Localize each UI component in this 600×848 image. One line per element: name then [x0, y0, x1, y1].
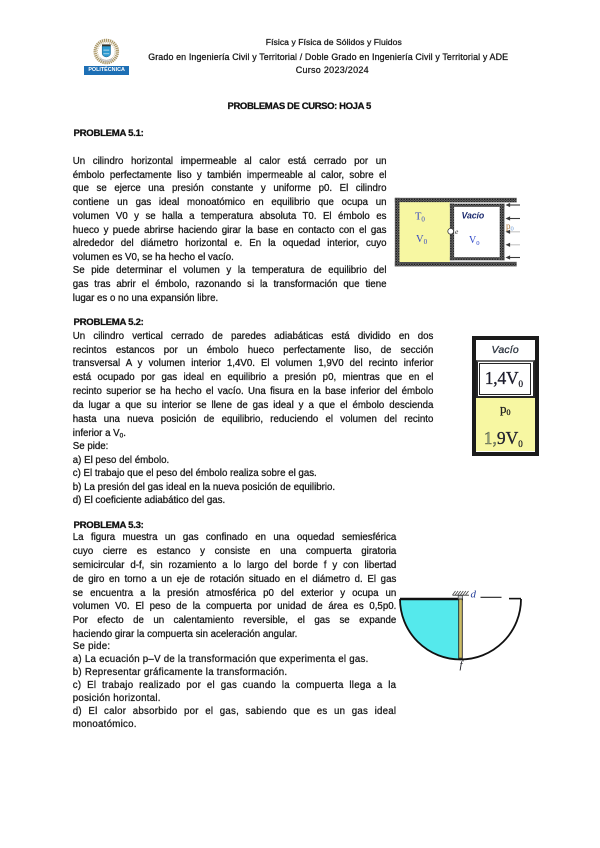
svg-text:V0: V0 [469, 235, 480, 247]
svg-text:e: e [455, 227, 459, 236]
svg-text:p0: p0 [506, 221, 514, 233]
svg-text:d: d [471, 589, 477, 601]
svg-text:Vacío: Vacío [462, 211, 485, 221]
svg-text:f: f [460, 659, 465, 671]
